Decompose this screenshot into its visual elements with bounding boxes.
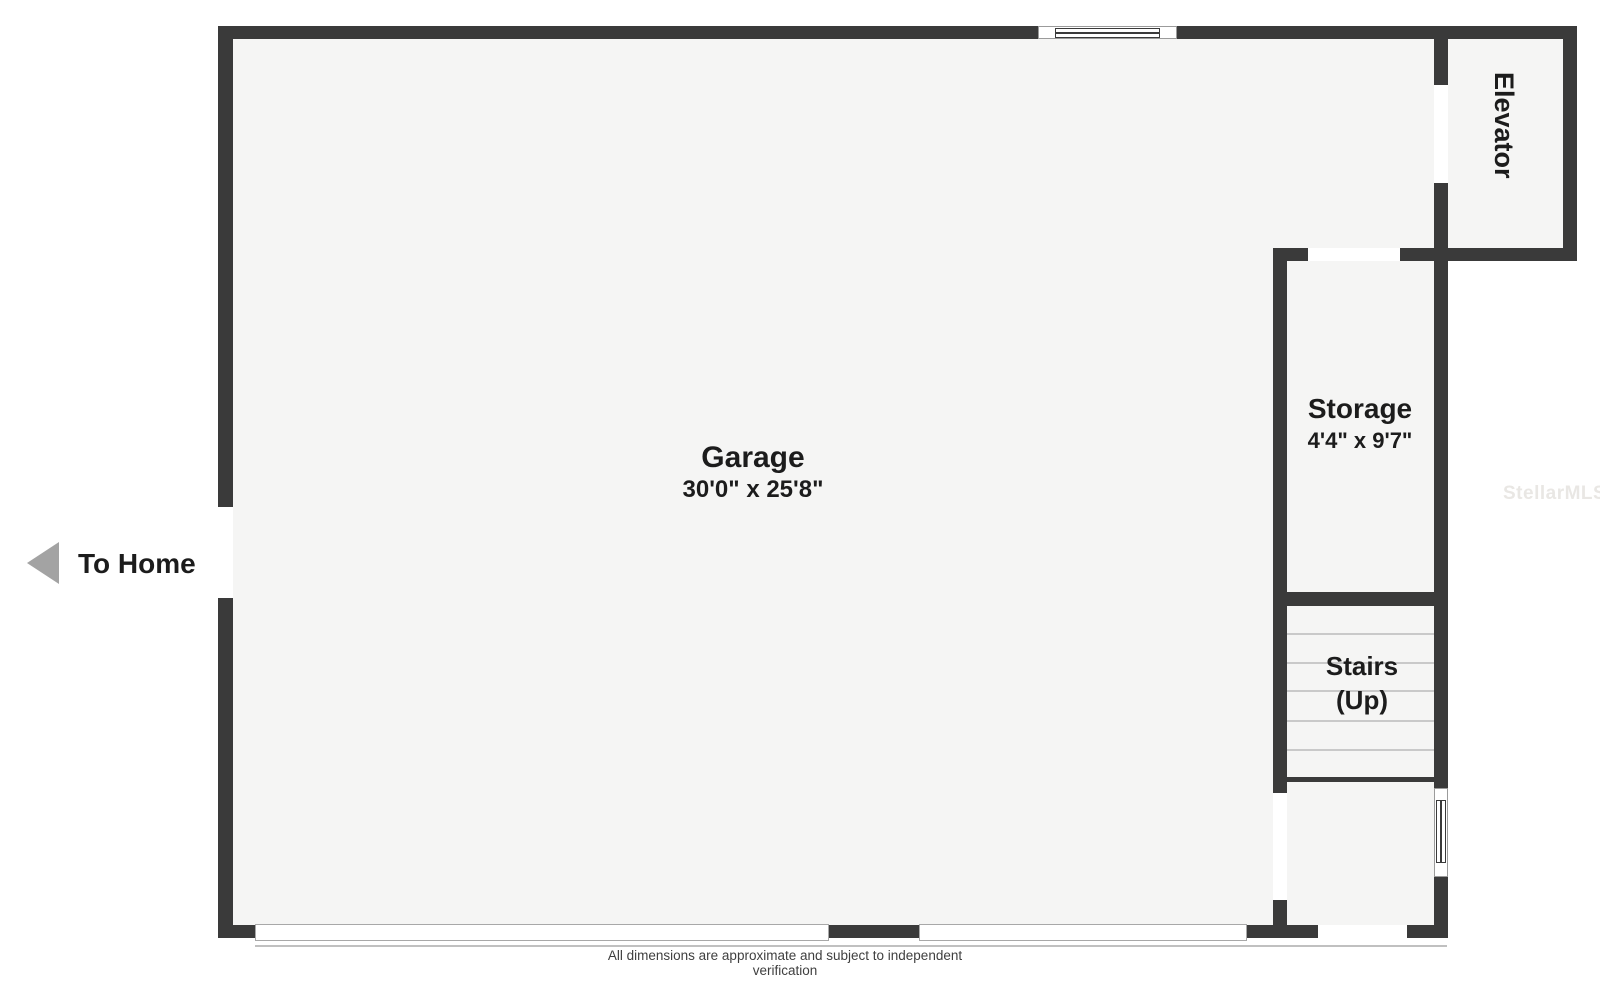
watermark: StellarMLS [1503, 483, 1600, 505]
stair-tread [1287, 720, 1434, 722]
garage-label: Garage [701, 441, 804, 474]
elevator-label: Elevator [1488, 72, 1519, 179]
storage-dimensions: 4'4" x 9'7" [1308, 428, 1413, 454]
storage-door-opening [1308, 248, 1400, 261]
wall-elevator-right [1563, 26, 1577, 260]
wall-left [218, 26, 233, 938]
garage-door-opening [255, 924, 829, 941]
garage-floor [225, 32, 1441, 932]
wall-stairs-landing-divider [1287, 777, 1434, 782]
to-home-arrow-icon [27, 542, 59, 584]
landing-door-opening [1273, 793, 1287, 900]
garage-door-track-line [255, 945, 1447, 947]
garage-dimensions: 30'0" x 25'8" [683, 476, 824, 504]
disclaimer-text: All dimensions are approximate and subje… [585, 948, 985, 978]
wall-top [218, 26, 1577, 39]
top-window-frame [1055, 28, 1160, 38]
elevator-door-opening [1434, 85, 1448, 183]
to-home-label: To Home [78, 548, 196, 580]
storage-label: Storage [1308, 394, 1412, 425]
landing-exterior-door-opening [1318, 925, 1407, 938]
landing-window-frame [1436, 800, 1446, 863]
garage-door-opening [919, 924, 1247, 941]
floorplan: Garage 30'0" x 25'8" Storage 4'4" x 9'7"… [0, 0, 1600, 990]
stair-tread [1287, 749, 1434, 751]
stairs-label: Stairs [1326, 652, 1398, 681]
to-home-door-opening [218, 507, 233, 598]
stairs-direction-label: (Up) [1336, 686, 1388, 715]
stair-tread [1287, 633, 1434, 635]
wall-storage-bottom [1273, 592, 1448, 606]
